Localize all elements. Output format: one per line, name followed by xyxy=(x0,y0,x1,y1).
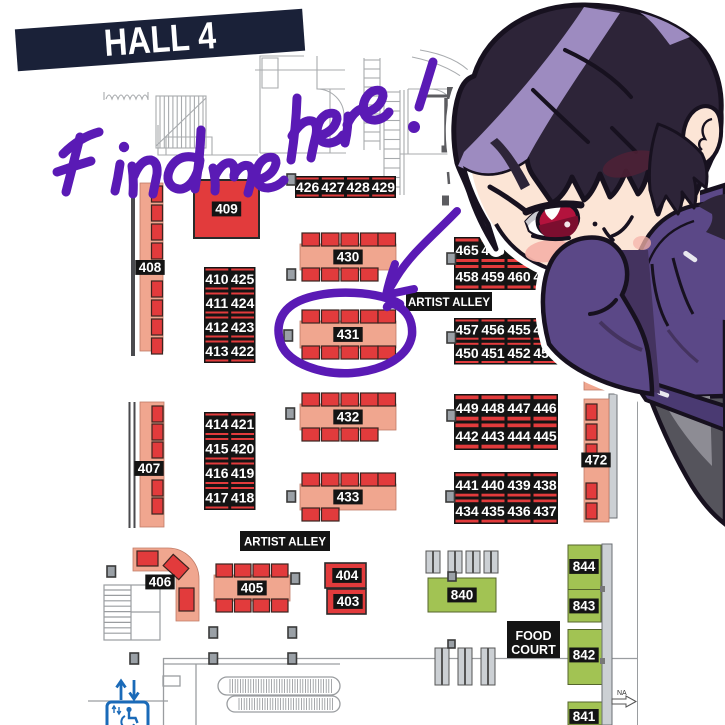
svg-text:452: 452 xyxy=(507,345,531,361)
svg-text:455: 455 xyxy=(507,322,531,338)
svg-text:420: 420 xyxy=(231,441,255,457)
svg-text:407: 407 xyxy=(138,461,161,476)
svg-text:408: 408 xyxy=(139,260,162,275)
svg-text:446: 446 xyxy=(533,400,557,416)
svg-text:419: 419 xyxy=(231,465,255,481)
svg-text:459: 459 xyxy=(481,269,505,285)
svg-text:429: 429 xyxy=(372,179,396,195)
svg-text:410: 410 xyxy=(205,271,229,287)
svg-text:456: 456 xyxy=(481,322,505,338)
svg-text:432: 432 xyxy=(337,410,360,425)
svg-text:413: 413 xyxy=(205,343,229,359)
svg-text:431: 431 xyxy=(337,327,360,342)
svg-text:448: 448 xyxy=(481,400,505,416)
svg-text:427: 427 xyxy=(321,179,345,195)
svg-text:465: 465 xyxy=(455,242,479,258)
svg-text:458: 458 xyxy=(455,269,479,285)
svg-text:404: 404 xyxy=(336,568,359,583)
svg-text:426: 426 xyxy=(296,179,320,195)
svg-text:444: 444 xyxy=(507,428,531,444)
svg-text:840: 840 xyxy=(451,588,474,603)
svg-text:423: 423 xyxy=(231,319,255,335)
svg-text:412: 412 xyxy=(205,319,229,335)
svg-text:414: 414 xyxy=(205,416,229,432)
svg-text:451: 451 xyxy=(481,345,505,361)
svg-text:421: 421 xyxy=(231,416,255,432)
svg-text:437: 437 xyxy=(533,503,557,519)
svg-text:472: 472 xyxy=(585,453,608,468)
svg-text:422: 422 xyxy=(231,343,255,359)
svg-text:417: 417 xyxy=(205,490,229,506)
svg-text:439: 439 xyxy=(507,477,531,493)
svg-text:843: 843 xyxy=(573,599,596,614)
svg-text:434: 434 xyxy=(455,503,479,519)
svg-text:841: 841 xyxy=(573,709,596,724)
svg-text:HALL 4: HALL 4 xyxy=(103,15,218,65)
svg-text:425: 425 xyxy=(231,271,255,287)
svg-text:438: 438 xyxy=(533,477,557,493)
svg-text:403: 403 xyxy=(337,594,360,609)
svg-text:443: 443 xyxy=(481,428,505,444)
svg-text:FOOD: FOOD xyxy=(515,629,551,643)
svg-text:416: 416 xyxy=(205,465,229,481)
svg-text:406: 406 xyxy=(149,575,172,590)
svg-text:457: 457 xyxy=(455,322,479,338)
svg-text:460: 460 xyxy=(507,269,531,285)
svg-text:415: 415 xyxy=(205,441,229,457)
svg-text:428: 428 xyxy=(346,179,370,195)
svg-text:844: 844 xyxy=(573,559,596,574)
svg-text:409: 409 xyxy=(215,202,238,217)
svg-text:405: 405 xyxy=(241,581,264,596)
svg-text:445: 445 xyxy=(533,428,557,444)
svg-text:ARTIST ALLEY: ARTIST ALLEY xyxy=(408,297,490,309)
svg-text:436: 436 xyxy=(507,503,531,519)
svg-text:435: 435 xyxy=(481,503,505,519)
svg-text:430: 430 xyxy=(337,250,360,265)
svg-text:418: 418 xyxy=(231,490,255,506)
svg-text:842: 842 xyxy=(573,648,596,663)
svg-text:ARTIST ALLEY: ARTIST ALLEY xyxy=(244,537,326,549)
svg-text:442: 442 xyxy=(455,428,479,444)
svg-text:440: 440 xyxy=(481,477,505,493)
svg-text:COURT: COURT xyxy=(511,643,556,657)
svg-text:411: 411 xyxy=(206,295,229,311)
svg-text:447: 447 xyxy=(507,400,531,416)
svg-text:449: 449 xyxy=(455,400,479,416)
svg-text:441: 441 xyxy=(455,477,479,493)
svg-text:424: 424 xyxy=(231,295,255,311)
svg-text:433: 433 xyxy=(337,490,360,505)
svg-text:450: 450 xyxy=(455,345,479,361)
